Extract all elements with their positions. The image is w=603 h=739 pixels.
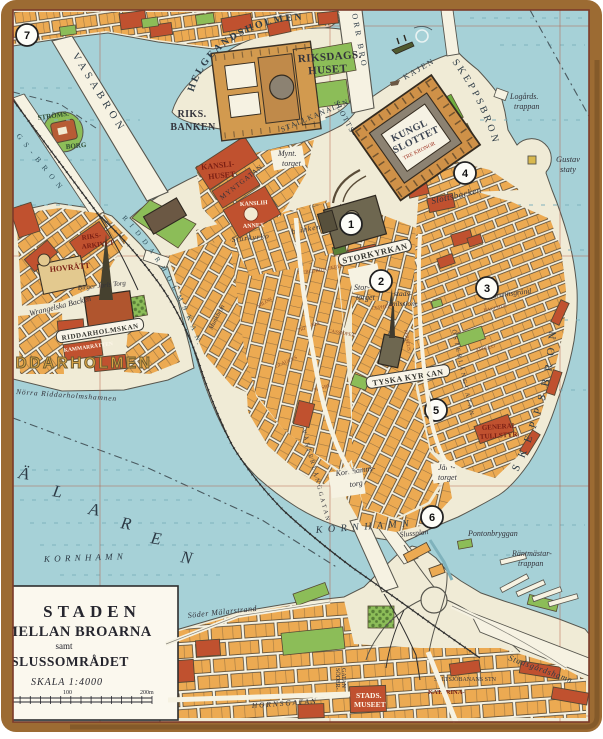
svg-text:MUSEET: MUSEET <box>354 700 386 709</box>
svg-text:trappan: trappan <box>514 102 539 111</box>
svg-text:torg: torg <box>349 478 363 489</box>
svg-text:100: 100 <box>63 690 72 696</box>
svg-text:3: 3 <box>484 283 490 295</box>
svg-text:SKALA 1:4000: SKALA 1:4000 <box>31 677 103 688</box>
svg-text:torget: torget <box>282 159 302 168</box>
svg-text:5: 5 <box>433 405 439 417</box>
svg-text:Gustav: Gustav <box>556 154 580 164</box>
svg-text:trappan: trappan <box>518 559 543 568</box>
svg-text:6: 6 <box>429 512 435 524</box>
svg-text:200m: 200m <box>140 690 154 696</box>
svg-text:MELLAN BROARNA: MELLAN BROARNA <box>4 624 152 640</box>
svg-text:staty: staty <box>560 164 576 174</box>
svg-text:SALTSJÖBANANS STN: SALTSJÖBANANS STN <box>434 676 497 683</box>
svg-text:STADEN: STADEN <box>43 602 141 621</box>
svg-text:Mynt.: Mynt. <box>277 149 296 158</box>
svg-text:1: 1 <box>348 219 354 231</box>
svg-text:Pontonbryggan: Pontonbryggan <box>467 529 518 538</box>
svg-text:torget: torget <box>356 293 376 302</box>
svg-text:SÖDER-: SÖDER- <box>334 668 341 690</box>
svg-text:SLUSSOMRÅDET: SLUSSOMRÅDET <box>11 654 129 669</box>
svg-text:Räntmästar-: Räntmästar- <box>511 549 552 558</box>
svg-text:RIDDARHOLMEN: RIDDARHOLMEN <box>0 355 152 372</box>
svg-text:stads-: stads- <box>394 289 412 298</box>
svg-text:GATAN: GATAN <box>340 668 346 689</box>
svg-text:BANKEN: BANKEN <box>170 122 216 133</box>
svg-text:samt: samt <box>56 641 73 651</box>
svg-text:2: 2 <box>378 276 384 288</box>
svg-text:STADS.: STADS. <box>356 691 382 700</box>
svg-text:RIKS.: RIKS. <box>178 109 207 120</box>
svg-text:torget: torget <box>438 473 458 482</box>
svg-text:7: 7 <box>24 30 30 42</box>
svg-text:Stor-: Stor- <box>354 283 370 292</box>
svg-text:Logårds.: Logårds. <box>509 92 538 101</box>
svg-text:4: 4 <box>462 168 469 180</box>
